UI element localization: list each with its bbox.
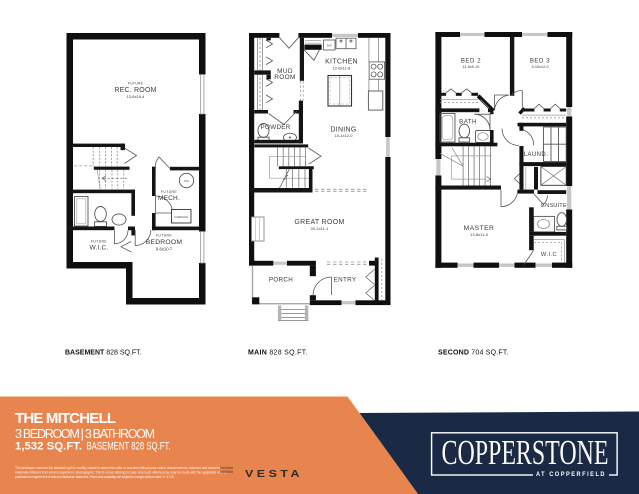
- svg-text:LAUND.: LAUND.: [524, 152, 548, 158]
- svg-text:DW: DW: [327, 43, 332, 47]
- svg-text:FURNACE: FURNACE: [174, 215, 188, 219]
- svg-text:FUTURE: FUTURE: [156, 234, 172, 238]
- svg-text:1,532 SQ.FT.: 1,532 SQ.FT.: [15, 441, 82, 453]
- svg-text:PORCH: PORCH: [269, 277, 293, 284]
- svg-text:purchase and agreement of sale: purchase and agreement of sale and discl…: [15, 475, 175, 479]
- svg-text:9-10x12-0: 9-10x12-0: [531, 65, 548, 69]
- svg-text:BEDROOM: BEDROOM: [146, 239, 183, 246]
- svg-text:11-5x9-10: 11-5x9-10: [463, 65, 480, 69]
- svg-text:GREAT ROOM: GREAT ROOM: [294, 219, 344, 226]
- svg-text:WH: WH: [184, 179, 189, 183]
- svg-text:10-1x12-0: 10-1x12-0: [334, 133, 353, 138]
- svg-text:BED 3: BED 3: [530, 59, 550, 65]
- svg-text:W.I.C.: W.I.C.: [90, 245, 109, 252]
- svg-text:13-6x19-4: 13-6x19-4: [126, 94, 145, 99]
- svg-text:MECH.: MECH.: [158, 195, 180, 202]
- svg-text:SECOND 704 SQ.FT.: SECOND 704 SQ.FT.: [438, 350, 509, 357]
- svg-text:3 BEDROOM | 3 BATHROOM: 3 BEDROOM | 3 BATHROOM: [15, 427, 155, 441]
- svg-text:MAIN 828 SQ.FT.: MAIN 828 SQ.FT.: [248, 350, 308, 357]
- svg-text:12-8x11-8: 12-8x11-8: [333, 65, 351, 70]
- svg-text:FUTURE: FUTURE: [91, 240, 107, 244]
- svg-text:COPPERSTONE: COPPERSTONE: [442, 434, 609, 472]
- svg-text:materially different from what: materially different from what is depict…: [15, 471, 227, 475]
- svg-text:BATH: BATH: [459, 119, 477, 126]
- svg-text:FUTURE: FUTURE: [128, 82, 144, 86]
- svg-text:BED 2: BED 2: [461, 59, 481, 65]
- svg-text:VESTA: VESTA: [245, 468, 303, 480]
- svg-text:BASEMENT 828 SQ.FT.: BASEMENT 828 SQ.FT.: [65, 350, 142, 357]
- svg-text:POWDER: POWDER: [261, 124, 291, 131]
- svg-text:9-6x10-7: 9-6x10-7: [156, 247, 173, 252]
- svg-text:THE MITCHELL: THE MITCHELL: [15, 410, 116, 427]
- svg-text:MASTER: MASTER: [464, 225, 495, 232]
- svg-text:ENTRY: ENTRY: [334, 277, 357, 284]
- svg-text:ROOM: ROOM: [274, 74, 295, 81]
- svg-text:FUTURE: FUTURE: [161, 190, 177, 194]
- svg-text:AT COPPERFIELD: AT COPPERFIELD: [536, 472, 606, 478]
- svg-text:20-1x11-1: 20-1x11-1: [311, 226, 329, 231]
- svg-text:The developer reserves the abs: The developer reserves the absolute righ…: [15, 466, 227, 470]
- svg-text:13-8x11-5: 13-8x11-5: [470, 232, 488, 237]
- svg-text:BASEMENT 828 SQ.FT.: BASEMENT 828 SQ.FT.: [87, 441, 171, 453]
- svg-text:W.I.C: W.I.C: [541, 252, 557, 258]
- svg-text:ENSUITE: ENSUITE: [541, 203, 567, 209]
